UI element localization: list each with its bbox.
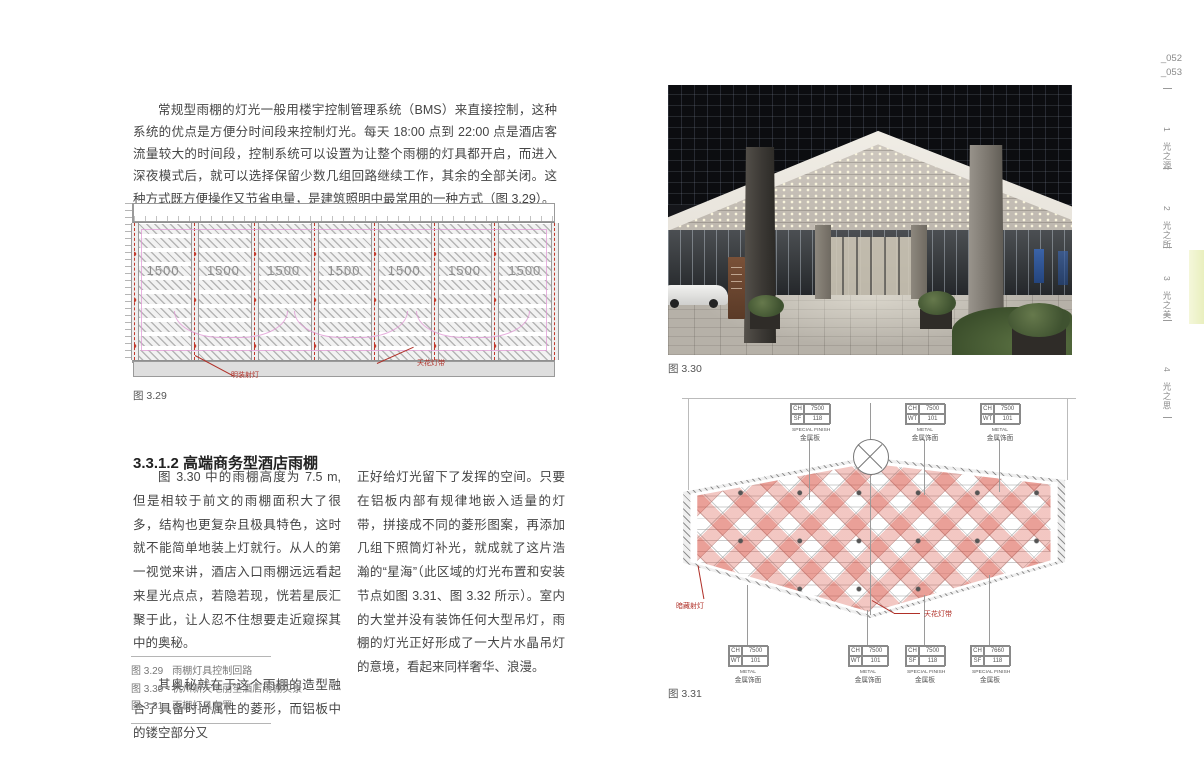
spotlight-annotation: 明装射灯 bbox=[231, 370, 259, 380]
caption-row: 图 3.31 雨棚灯具布置 bbox=[131, 698, 271, 716]
photo-shrub bbox=[918, 291, 956, 315]
figure-329-caption: 图 3.29 bbox=[133, 388, 167, 403]
photo-shrub bbox=[748, 295, 784, 317]
strip-annotation: 天花灯带 bbox=[417, 358, 445, 368]
callout-stem bbox=[989, 575, 990, 645]
finish-callout: CH7660SF118SPECIAL FINISH金属板 bbox=[970, 645, 1010, 685]
callout-stem bbox=[999, 440, 1000, 492]
tab-label: 光之思 bbox=[1162, 382, 1172, 411]
tab-number: 4 bbox=[1162, 367, 1172, 373]
text-column-right: 正好给灯光留下了发挥的空间。只要在铝板内部有规律地嵌入适量的灯带，拼接成不同的菱… bbox=[357, 466, 565, 763]
photo-banner bbox=[1034, 249, 1044, 283]
dimension-label: 1500 bbox=[495, 263, 555, 278]
figure-caption-list: 图 3.29 雨棚灯具控制回路 图 3.30 杭州新天地丽笙酒店雨棚实景 图 3… bbox=[131, 656, 271, 724]
tab-divider bbox=[1163, 320, 1172, 321]
callout-stem bbox=[809, 440, 810, 500]
paragraph: 图 3.30 中的雨棚高度为 7.5 m, 但是相较于前文的雨棚面积大了很多，结… bbox=[133, 466, 341, 656]
finish-callout: CH7500SF118SPECIAL FINISH金属板 bbox=[905, 645, 945, 685]
callout-stem bbox=[924, 440, 925, 495]
strip-annotation: 天花灯带 bbox=[924, 609, 952, 619]
tab-divider bbox=[1163, 417, 1172, 418]
intro-paragraph: 常规型雨棚的灯光一般用楼宇控制管理系统（BMS）来直接控制，这种系统的优点是方便… bbox=[133, 99, 557, 210]
finish-callout: CH7500WT101METAL金属饰面 bbox=[848, 645, 888, 685]
dimension-label: 1500 bbox=[254, 263, 314, 278]
leader-line bbox=[894, 613, 920, 614]
outer-wall-line bbox=[688, 398, 689, 490]
finish-callout: CH7500WT101METAL金属饰面 bbox=[728, 645, 768, 685]
photo-column bbox=[911, 225, 927, 299]
center-axis-line bbox=[870, 403, 871, 615]
sidebar-tab-chapter-3[interactable]: 3 光之美 bbox=[1161, 276, 1173, 320]
finish-callout: CH7500SF118SPECIAL FINISH金属板 bbox=[790, 403, 830, 443]
drawing-top-beam bbox=[133, 203, 555, 222]
dimension-label: 1500 bbox=[314, 263, 374, 278]
sidebar-tab-chapter-1[interactable]: 1 光之源 bbox=[1161, 127, 1173, 171]
tab-number: 3 bbox=[1162, 276, 1172, 282]
tab-number: 2 bbox=[1162, 206, 1172, 212]
callout-stem bbox=[924, 595, 925, 645]
photo-car bbox=[668, 285, 728, 305]
dimension-label: 1500 bbox=[193, 263, 253, 278]
paragraph: 正好给灯光留下了发挥的空间。只要在铝板内部有规律地嵌入适量的灯带，拼接成不同的菱… bbox=[357, 466, 565, 680]
dimension-label: 1500 bbox=[374, 263, 434, 278]
figure-329-drawing: 1500150015001500150015001500 明装射灯 天花灯带 bbox=[125, 203, 557, 381]
tab-divider bbox=[1163, 247, 1172, 248]
caption-text: 雨棚灯具控制回路 bbox=[172, 663, 252, 681]
caption-text: 杭州新天地丽笙酒店雨棚实景 bbox=[172, 681, 302, 699]
compass-circle-icon bbox=[853, 439, 889, 475]
caption-row: 图 3.30 杭州新天地丽笙酒店雨棚实景 bbox=[131, 681, 271, 699]
figure-331-drawing: CH7500SF118SPECIAL FINISH金属板 CH7500WT101… bbox=[668, 395, 1090, 685]
tab-label: 光之源 bbox=[1162, 142, 1172, 171]
callout-stem bbox=[747, 585, 748, 645]
figure-331-caption: 图 3.31 bbox=[668, 686, 702, 701]
caption-text: 雨棚灯具布置 bbox=[172, 698, 232, 716]
tab-number: 1 bbox=[1162, 127, 1172, 133]
outer-wall-line bbox=[1067, 398, 1068, 480]
caption-row: 图 3.29 雨棚灯具控制回路 bbox=[131, 663, 271, 681]
page-number-right: _053 bbox=[1152, 66, 1182, 80]
photo-signage-totem bbox=[728, 257, 745, 319]
tab-label: 光之美 bbox=[1162, 291, 1172, 320]
page-number-left: _052 bbox=[1152, 52, 1182, 66]
drawing-bottom-beam bbox=[133, 361, 555, 377]
dimension-row: 1500150015001500150015001500 bbox=[133, 263, 555, 278]
photo-banner bbox=[1058, 251, 1068, 285]
dimension-label: 1500 bbox=[434, 263, 494, 278]
active-chapter-band bbox=[1189, 250, 1204, 324]
tab-divider bbox=[1163, 88, 1172, 89]
outer-wall-line bbox=[682, 398, 1076, 399]
sidebar-tab-chapter-2[interactable]: 2 光之所 bbox=[1161, 206, 1173, 250]
hotel-canopy-photo bbox=[668, 85, 1072, 355]
finish-callout: CH7500WT101METAL金属饰面 bbox=[905, 403, 945, 443]
caption-number: 图 3.29 bbox=[131, 663, 163, 681]
spotlight-dots-grid bbox=[134, 223, 554, 360]
figure-330-caption: 图 3.30 bbox=[668, 361, 702, 376]
photo-entrance-doors bbox=[828, 237, 918, 297]
page-numbers: _052 _053 bbox=[1152, 52, 1182, 81]
divider bbox=[131, 723, 271, 724]
tab-label: 光之所 bbox=[1162, 221, 1172, 250]
dimension-label: 1500 bbox=[133, 263, 193, 278]
finish-callout: CH7500WT101METAL金属饰面 bbox=[980, 403, 1020, 443]
book-spread: 常规型雨棚的灯光一般用楼宇控制管理系统（BMS）来直接控制，这种系统的优点是方便… bbox=[0, 0, 1204, 779]
sidebar-tab-chapter-4[interactable]: 4 光之思 bbox=[1161, 367, 1173, 411]
callout-stem bbox=[867, 610, 868, 645]
photo-shrub bbox=[1008, 303, 1070, 337]
caption-number: 图 3.30 bbox=[131, 681, 163, 699]
tab-divider bbox=[1163, 168, 1172, 169]
leader-line bbox=[698, 565, 705, 599]
canopy-hatch-panels bbox=[133, 222, 555, 361]
spotlight-annotation: 暗藏射灯 bbox=[676, 601, 704, 611]
photo-column bbox=[815, 225, 831, 299]
caption-number: 图 3.31 bbox=[131, 698, 163, 716]
divider bbox=[131, 656, 271, 657]
